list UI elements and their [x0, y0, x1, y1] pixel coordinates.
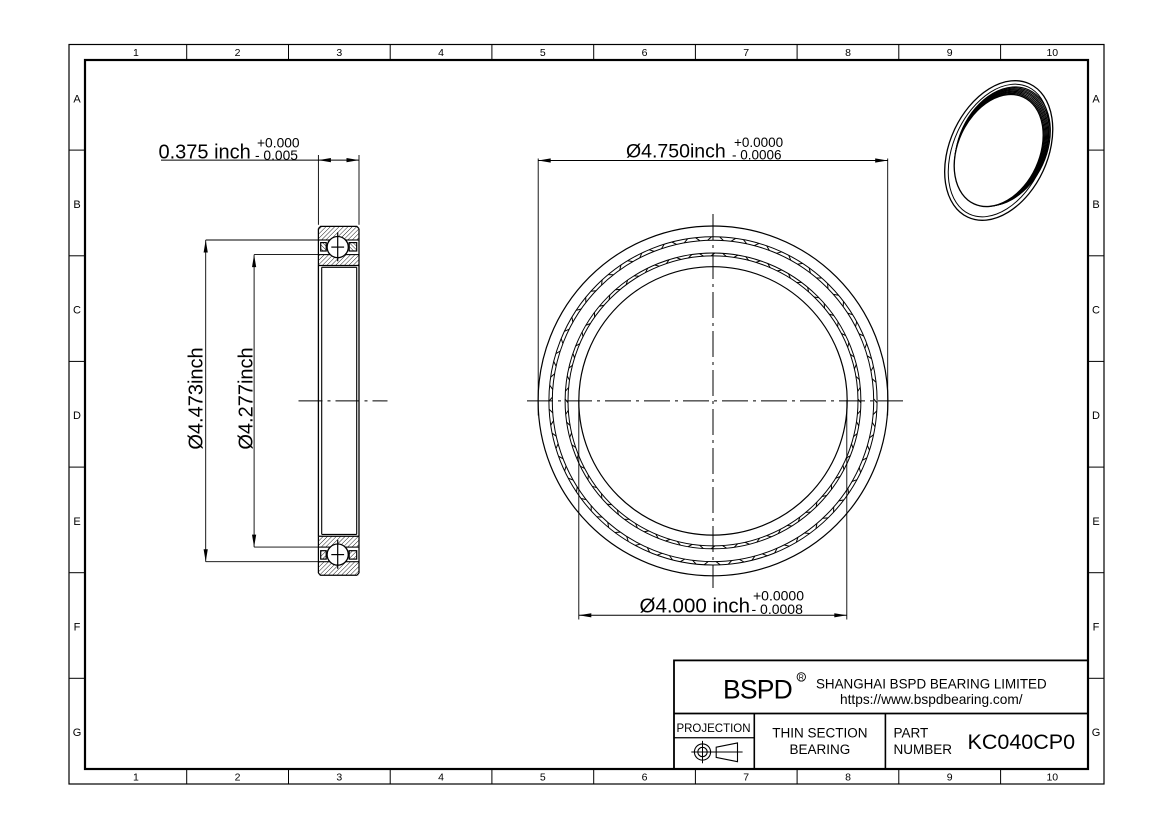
svg-text:5: 5 [540, 772, 546, 784]
svg-text:Ø4.000 inch: Ø4.000 inch [640, 595, 751, 618]
svg-text:https://www.bspdbearing.com/: https://www.bspdbearing.com/ [840, 692, 1023, 707]
svg-text:3: 3 [336, 772, 342, 784]
svg-text:10: 10 [1046, 772, 1058, 784]
svg-text:KC040CP0: KC040CP0 [968, 730, 1076, 754]
svg-text:A: A [1092, 93, 1100, 105]
svg-text:6: 6 [642, 47, 648, 59]
svg-text:Ø4.473inch: Ø4.473inch [186, 347, 208, 449]
svg-text:- 0.0006: - 0.0006 [732, 147, 782, 162]
svg-text:10: 10 [1046, 47, 1058, 59]
svg-text:F: F [1093, 622, 1100, 634]
svg-text:- 0.0008: - 0.0008 [752, 601, 804, 617]
svg-text:- 0.005: - 0.005 [255, 148, 298, 163]
svg-text:D: D [1092, 410, 1100, 422]
svg-text:C: C [1092, 305, 1100, 317]
svg-text:9: 9 [947, 47, 953, 59]
svg-text:G: G [73, 727, 82, 739]
svg-text:1: 1 [133, 47, 139, 59]
svg-text:0.375 inch: 0.375 inch [159, 141, 251, 163]
svg-text:PROJECTION: PROJECTION [676, 723, 750, 735]
svg-text:E: E [73, 516, 80, 528]
svg-text:NUMBER: NUMBER [894, 742, 953, 757]
svg-text:9: 9 [947, 772, 953, 784]
svg-text:C: C [73, 305, 81, 317]
svg-text:7: 7 [743, 772, 749, 784]
svg-text:1: 1 [133, 772, 139, 784]
svg-text:SHANGHAI BSPD BEARING LIMITED: SHANGHAI BSPD BEARING LIMITED [816, 677, 1047, 692]
svg-text:THIN SECTION: THIN SECTION [772, 726, 867, 741]
svg-text:R: R [799, 674, 804, 681]
svg-text:6: 6 [642, 772, 648, 784]
svg-text:F: F [74, 622, 81, 634]
svg-text:8: 8 [845, 47, 851, 59]
svg-text:E: E [1092, 516, 1099, 528]
svg-text:2: 2 [235, 47, 241, 59]
svg-text:Ø4.277inch: Ø4.277inch [236, 347, 258, 449]
svg-text:B: B [73, 199, 80, 211]
svg-text:BEARING: BEARING [790, 742, 851, 757]
svg-text:3: 3 [336, 47, 342, 59]
svg-text:D: D [73, 410, 81, 422]
svg-text:B: B [1092, 199, 1099, 211]
svg-text:G: G [1092, 727, 1101, 739]
svg-text:4: 4 [438, 47, 444, 59]
svg-text:BSPD: BSPD [723, 675, 792, 705]
svg-text:Ø4.750inch: Ø4.750inch [626, 141, 726, 163]
svg-text:8: 8 [845, 772, 851, 784]
svg-text:2: 2 [235, 772, 241, 784]
svg-text:A: A [73, 93, 81, 105]
svg-text:7: 7 [743, 47, 749, 59]
svg-text:4: 4 [438, 772, 444, 784]
svg-text:PART: PART [894, 726, 929, 741]
svg-text:5: 5 [540, 47, 546, 59]
